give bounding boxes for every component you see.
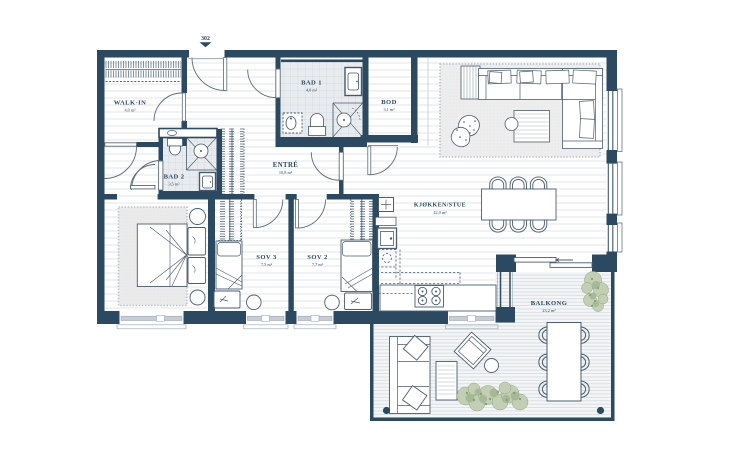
svg-text:SOV 3: SOV 3 bbox=[256, 254, 277, 261]
svg-text:302: 302 bbox=[201, 36, 210, 42]
svg-text:ENTRÉ: ENTRÉ bbox=[273, 161, 298, 169]
svg-text:BAD 2: BAD 2 bbox=[164, 174, 185, 181]
svg-text:SOV 2: SOV 2 bbox=[307, 254, 328, 261]
svg-text:KJØKKEN/STUE: KJØKKEN/STUE bbox=[414, 203, 466, 209]
svg-text:BOD: BOD bbox=[381, 99, 397, 106]
svg-text:WALK-IN: WALK-IN bbox=[114, 100, 146, 107]
svg-text:BAD 1: BAD 1 bbox=[301, 80, 322, 87]
svg-text:BALKONG: BALKONG bbox=[531, 300, 568, 307]
